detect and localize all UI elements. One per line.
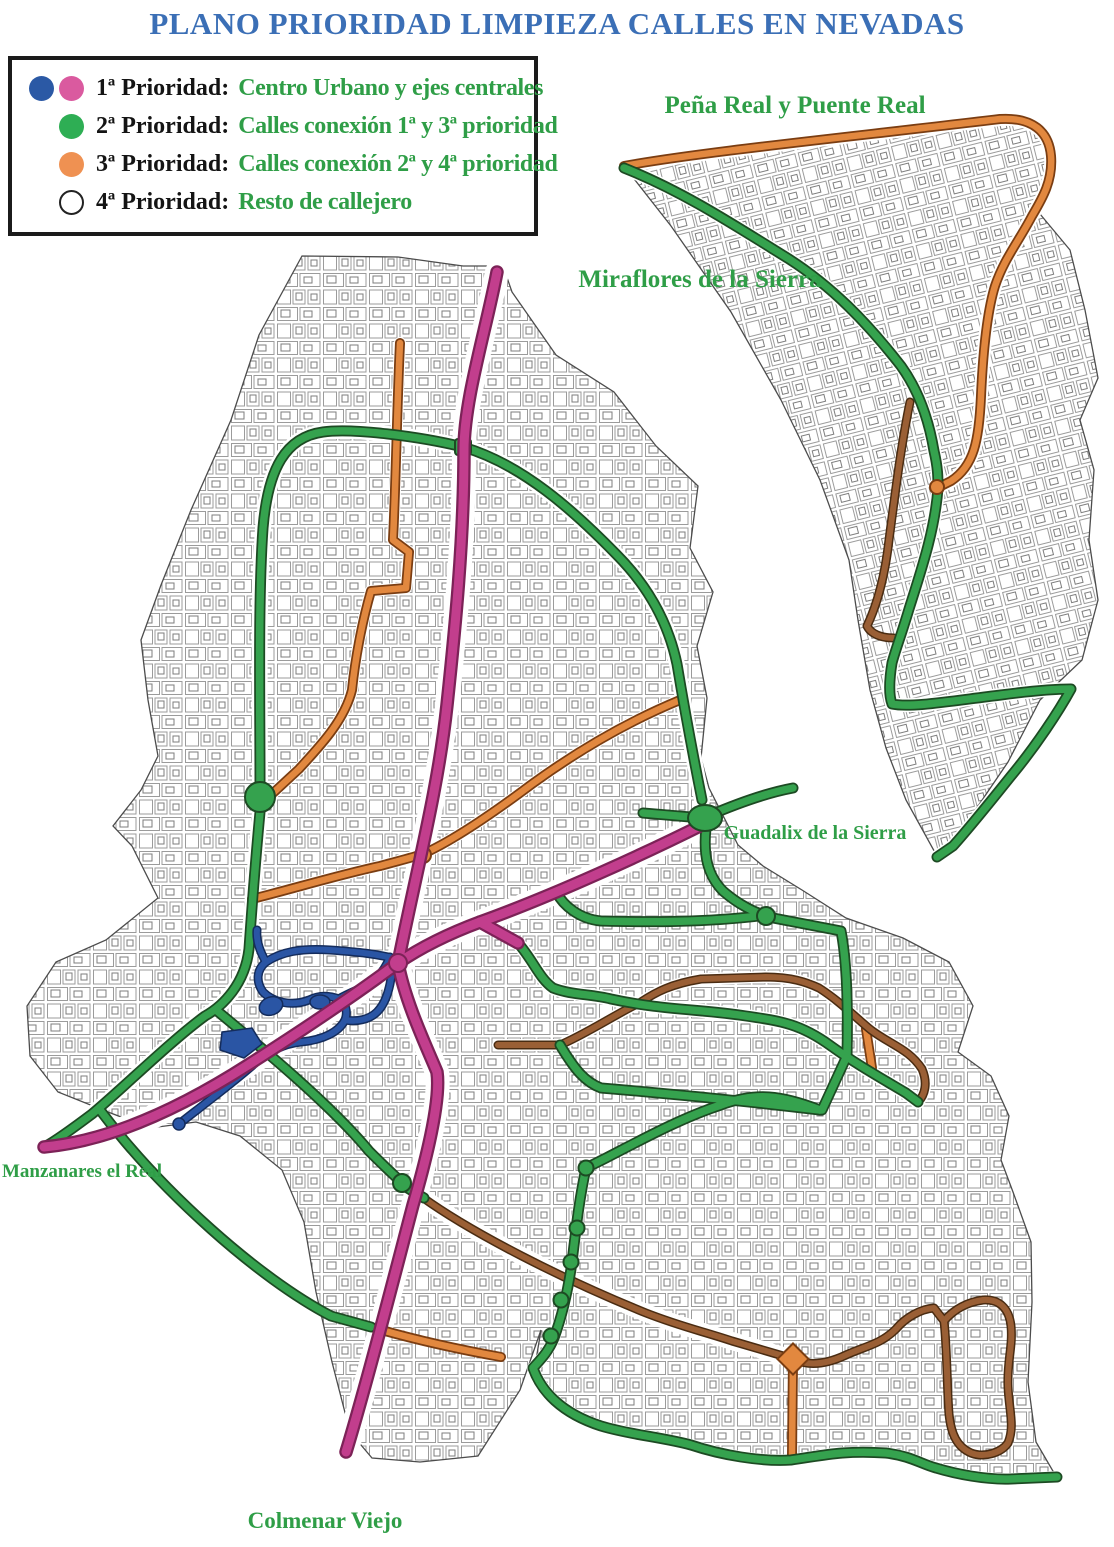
legend-description: Centro Urbano y ejes centrales [238,75,543,102]
snow-priority-map-page: PLANO PRIORIDAD LIMPIEZA CALLES EN NEVAD… [0,0,1114,1547]
map-label-miraflores: Miraflores de la Sierra [578,266,821,294]
priority4-white-dot-icon [59,190,84,215]
orange-green-flare [930,480,944,494]
green-roundabout-large [245,782,275,812]
green-minor-roundabout [579,1161,594,1176]
priority1-blue-dot-icon [29,76,54,101]
green-minor-roundabout [570,1221,585,1236]
legend-description: Calles conexión 1ª y 3ª prioridad [238,113,557,140]
map-label-guadalix: Guadalix de la Sierra [724,822,907,845]
legend-dots [20,152,84,177]
green-roundabout-small [393,1174,411,1192]
map-label-pena-real: Peña Real y Puente Real [664,92,925,120]
priority2-green-dot-icon [59,114,84,139]
priority3-orange-dot-icon [59,152,84,177]
green-node-dot [757,907,775,925]
blue-end-node [173,1118,185,1130]
legend-dots [20,76,84,101]
legend-term: 4ª Prioridad: [96,189,229,216]
pink-main-junction [389,954,407,972]
legend-description: Calles conexión 2ª y 4ª prioridad [238,151,557,178]
legend-term: 3ª Prioridad: [96,151,229,178]
legend-item-priority4: 4ª Prioridad: Resto de callejero [20,187,526,217]
guadalix-roundabout [688,805,722,831]
green-minor-roundabout [554,1293,569,1308]
legend-item-priority3: 3ª Prioridad: Calles conexión 2ª y 4ª pr… [20,149,526,179]
legend-dots [20,190,84,215]
legend-item-priority1: 1ª Prioridad: Centro Urbano y ejes centr… [20,73,526,103]
legend-term: 2ª Prioridad: [96,113,229,140]
legend-box: 1ª Prioridad: Centro Urbano y ejes centr… [8,56,538,236]
map-label-manzanares: Manzanares el Real [2,1161,162,1183]
priority1-pink-dot-icon [59,76,84,101]
map-label-colmenar: Colmenar Viejo [248,1508,403,1534]
green-minor-roundabout [544,1329,559,1344]
legend-description: Resto de callejero [238,189,412,216]
legend-term: 1ª Prioridad: [96,75,229,102]
legend-item-priority2: 2ª Prioridad: Calles conexión 1ª y 3ª pr… [20,111,526,141]
legend-dots [20,114,84,139]
green-minor-roundabout [564,1255,579,1270]
